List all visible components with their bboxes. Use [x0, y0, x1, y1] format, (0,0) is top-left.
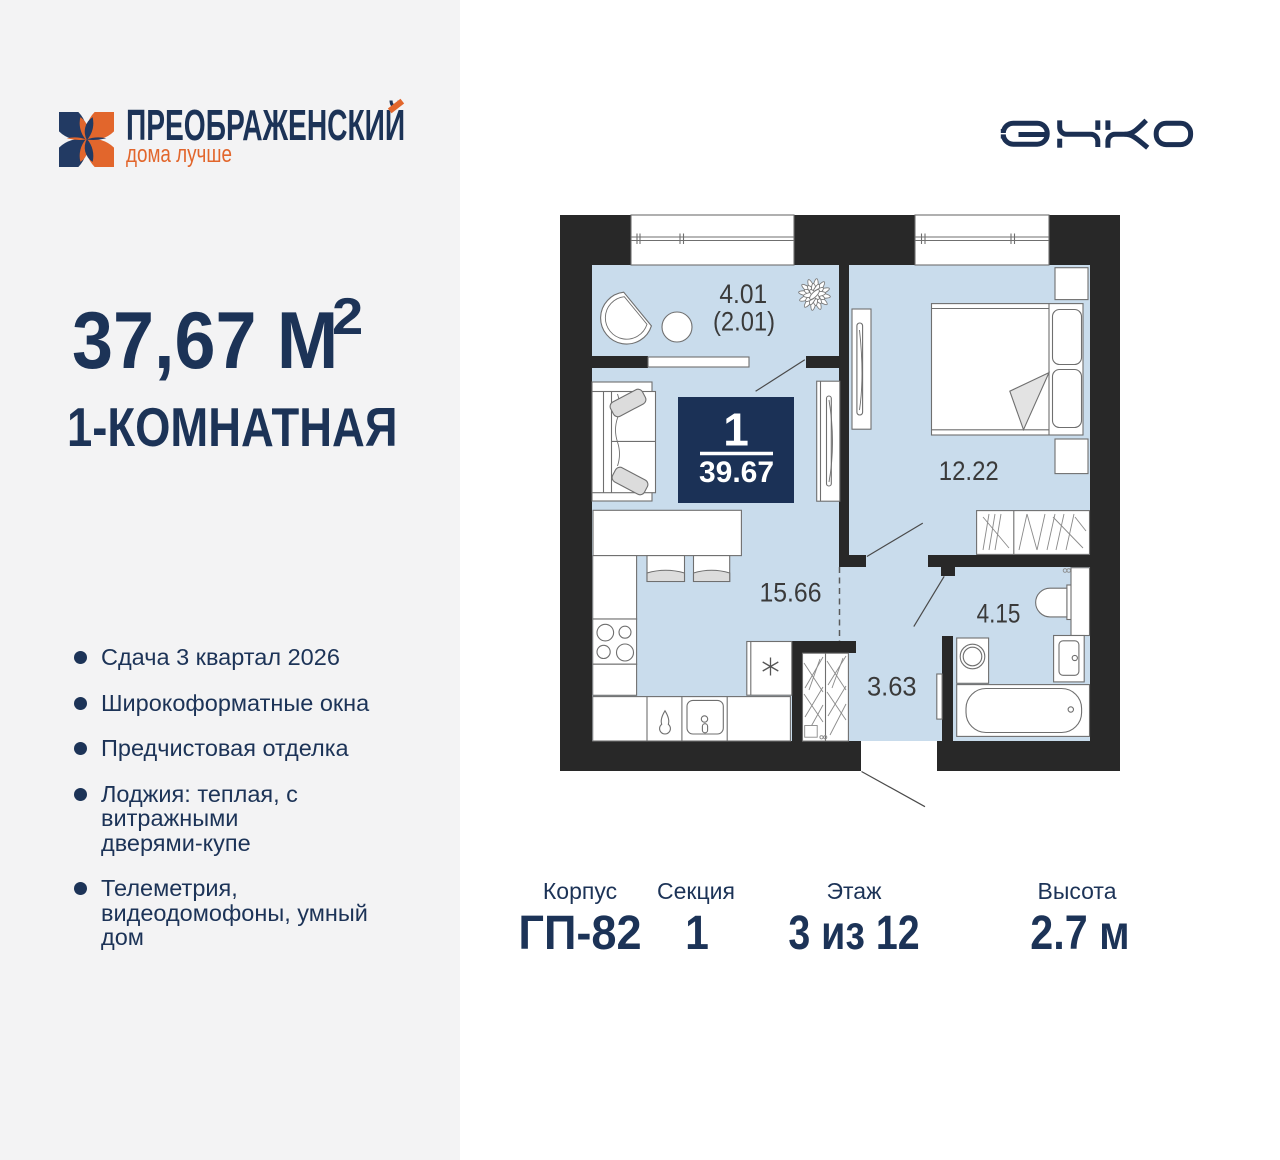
svg-text:3.63: 3.63	[867, 672, 917, 702]
svg-text:1: 1	[723, 404, 749, 456]
svg-text:4.01: 4.01	[719, 279, 767, 309]
svg-text:4.15: 4.15	[977, 599, 1021, 629]
svg-text:15.66: 15.66	[760, 578, 822, 608]
svg-text:39.67: 39.67	[699, 456, 774, 489]
svg-text:12.22: 12.22	[939, 456, 999, 486]
svg-text:(2.01): (2.01)	[713, 307, 775, 337]
